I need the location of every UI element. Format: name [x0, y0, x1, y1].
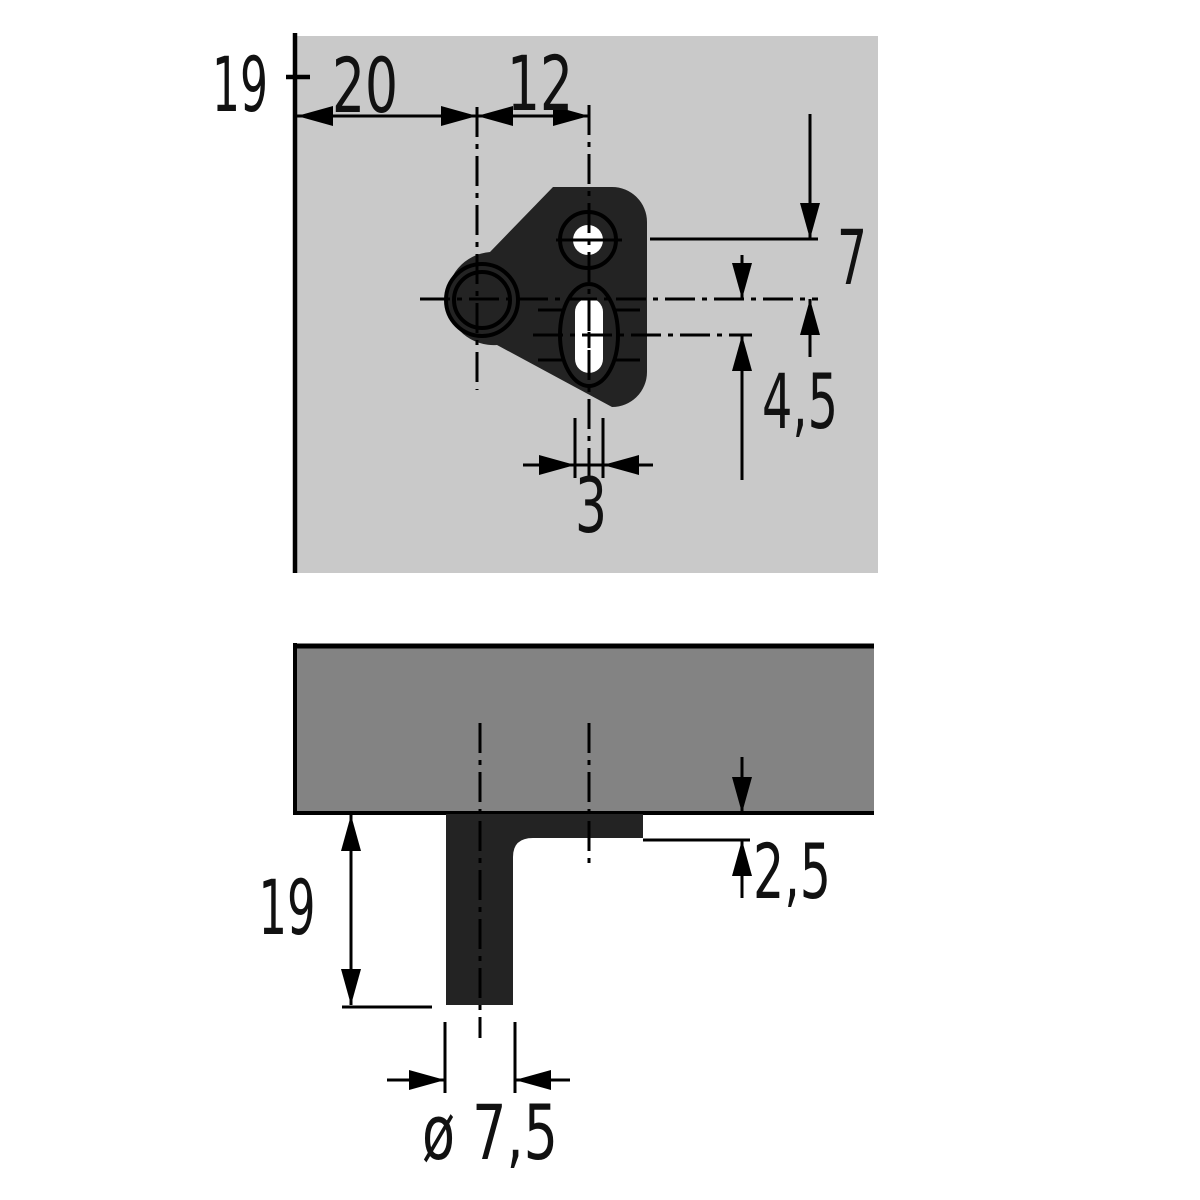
dim-label-slot-length: 4,5 — [762, 357, 838, 446]
dim-label-pin-diameter: ø 7,5 — [422, 1088, 558, 1177]
board-side-view — [295, 645, 874, 813]
dim-label-hole-spacing: 12 — [507, 39, 573, 128]
dim-label-hole-offset: 7 — [837, 213, 867, 302]
fitting-profile — [446, 814, 643, 1005]
dim-label-flange-thickness: 2,5 — [753, 827, 831, 916]
arrowhead-19-top — [341, 815, 361, 851]
top-view: 19 20 12 7 4,5 3 — [212, 33, 878, 573]
arrowhead-7-5-left — [409, 1070, 445, 1090]
dim-label-edge-distance: 20 — [332, 41, 398, 130]
dim-label-board-thickness: 19 — [212, 40, 268, 129]
arrowhead-7-5-right — [515, 1070, 551, 1090]
drawing-canvas: 19 20 12 7 4,5 3 19 2,5 ø 7 — [0, 0, 1200, 1200]
arrowhead-19-bottom — [341, 969, 361, 1005]
dim-label-depth-below-board: 19 — [259, 863, 316, 952]
technical-drawing: 19 20 12 7 4,5 3 19 2,5 ø 7 — [0, 0, 1200, 1200]
side-view: 19 2,5 ø 7,5 — [259, 643, 875, 1177]
dim-label-slot-width: 3 — [575, 461, 607, 550]
arrowhead-2-5-bottom — [732, 840, 752, 876]
